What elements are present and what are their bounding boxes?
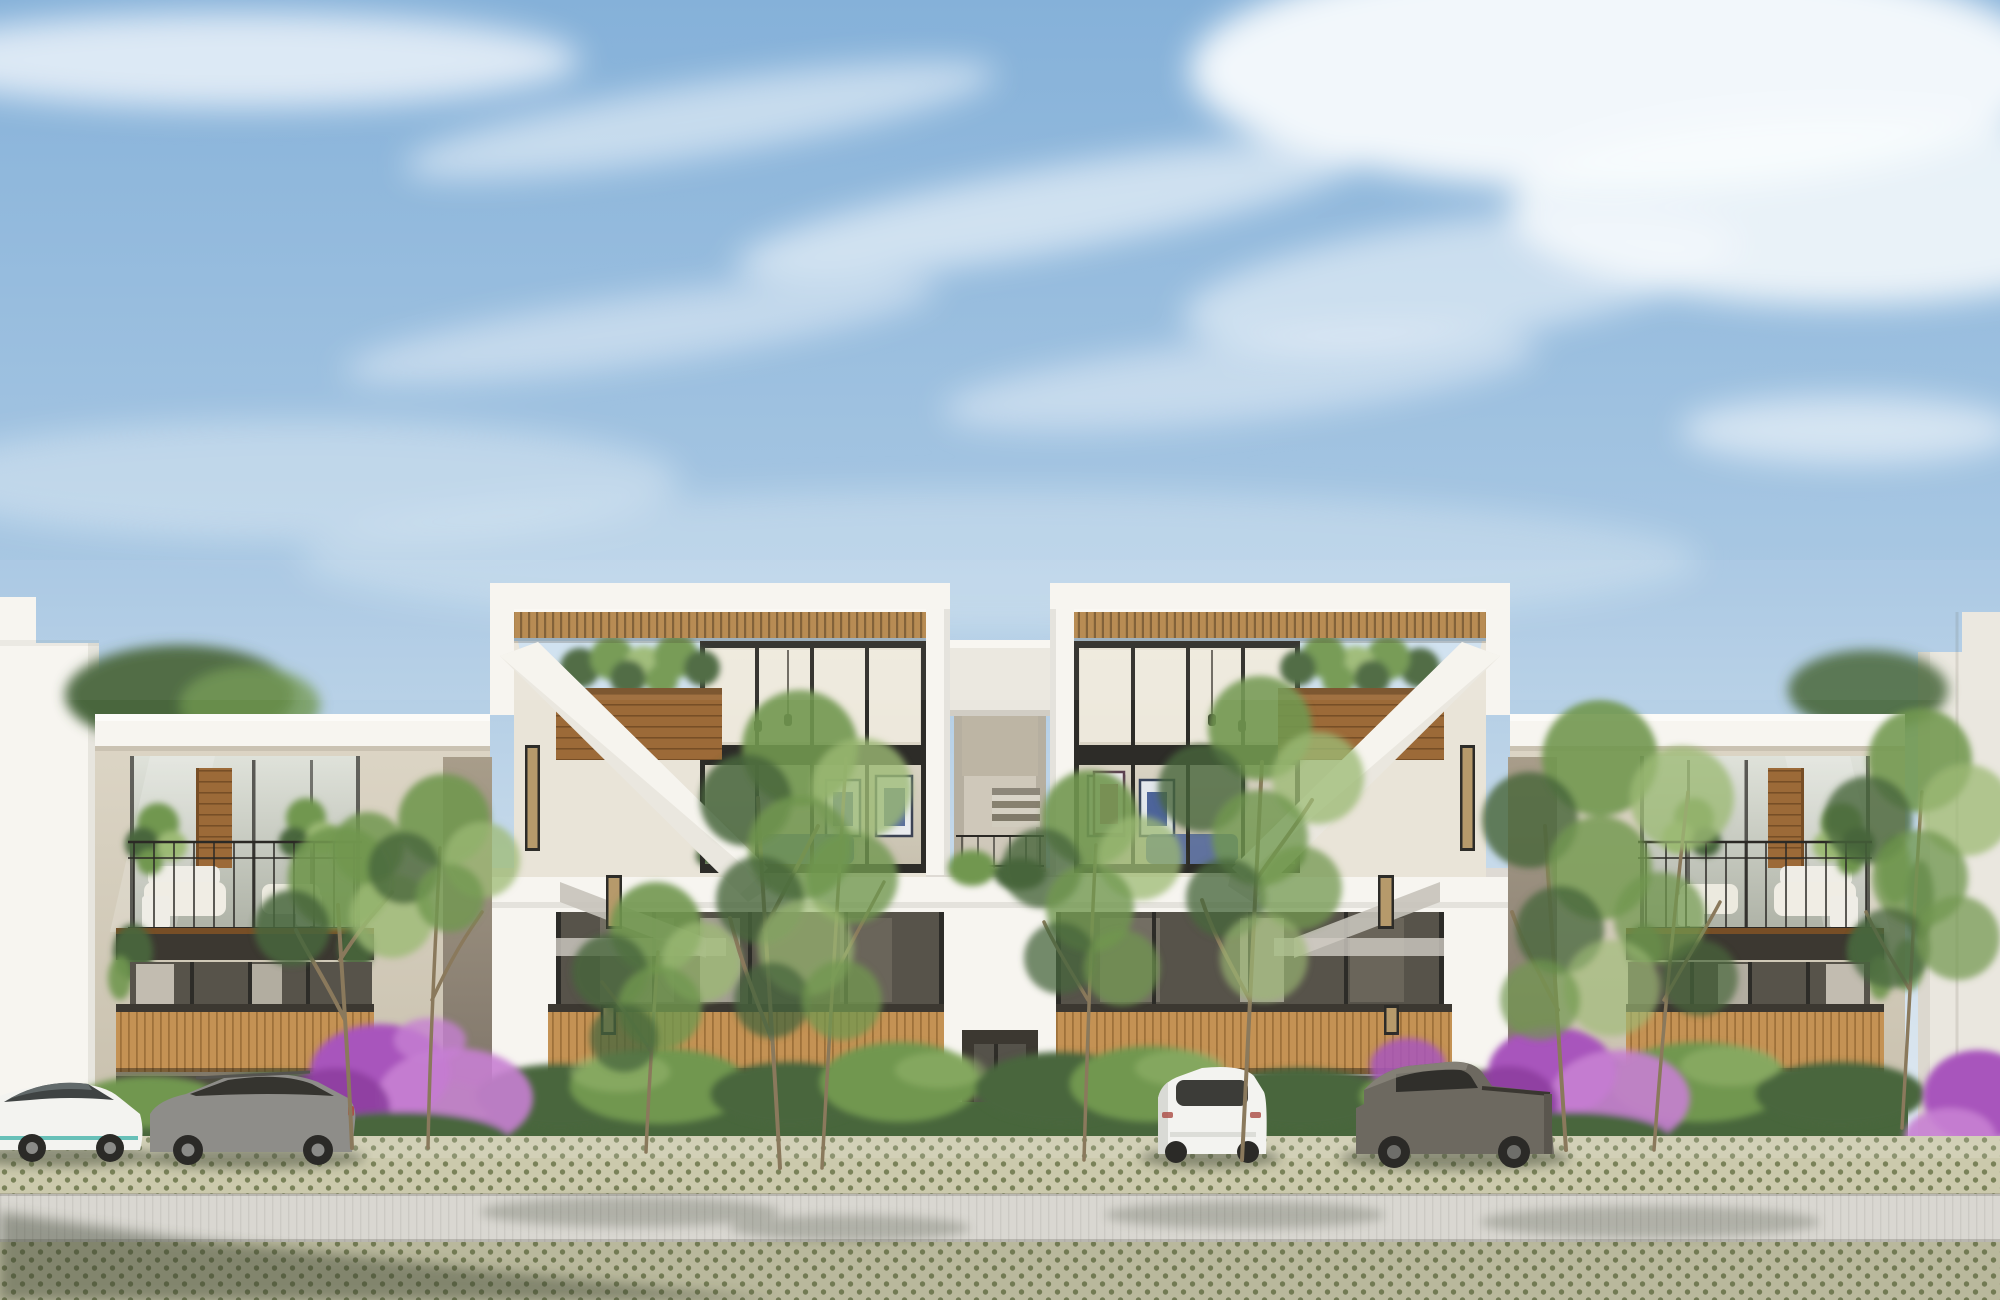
scene-svg xyxy=(0,0,2000,1300)
rendering-canvas xyxy=(0,0,2000,1300)
stair-steps xyxy=(992,788,1040,827)
atmosphere-haze xyxy=(0,560,2000,700)
white-suv xyxy=(1158,1067,1267,1163)
